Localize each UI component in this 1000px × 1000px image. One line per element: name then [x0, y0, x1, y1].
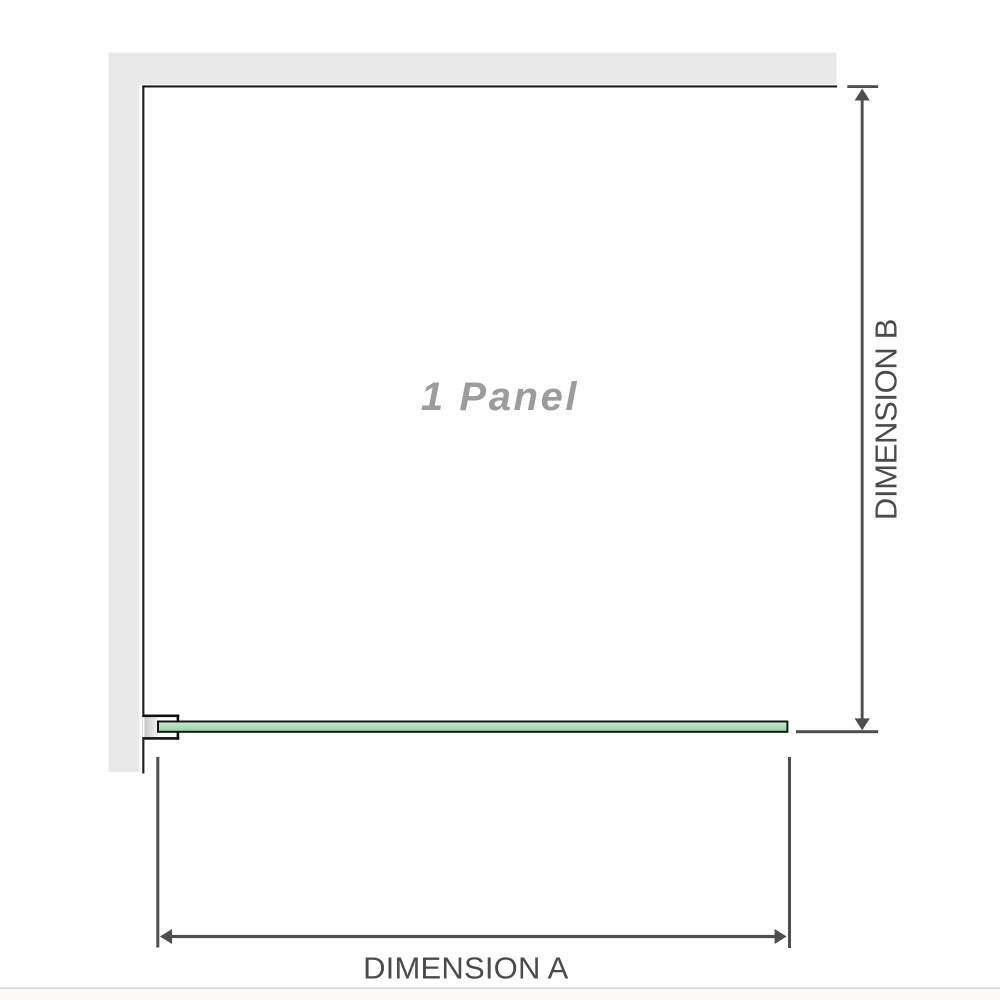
svg-text:DIMENSION B: DIMENSION B [869, 319, 904, 520]
svg-text:1 Panel: 1 Panel [421, 375, 579, 419]
svg-text:DIMENSION A: DIMENSION A [363, 950, 569, 985]
